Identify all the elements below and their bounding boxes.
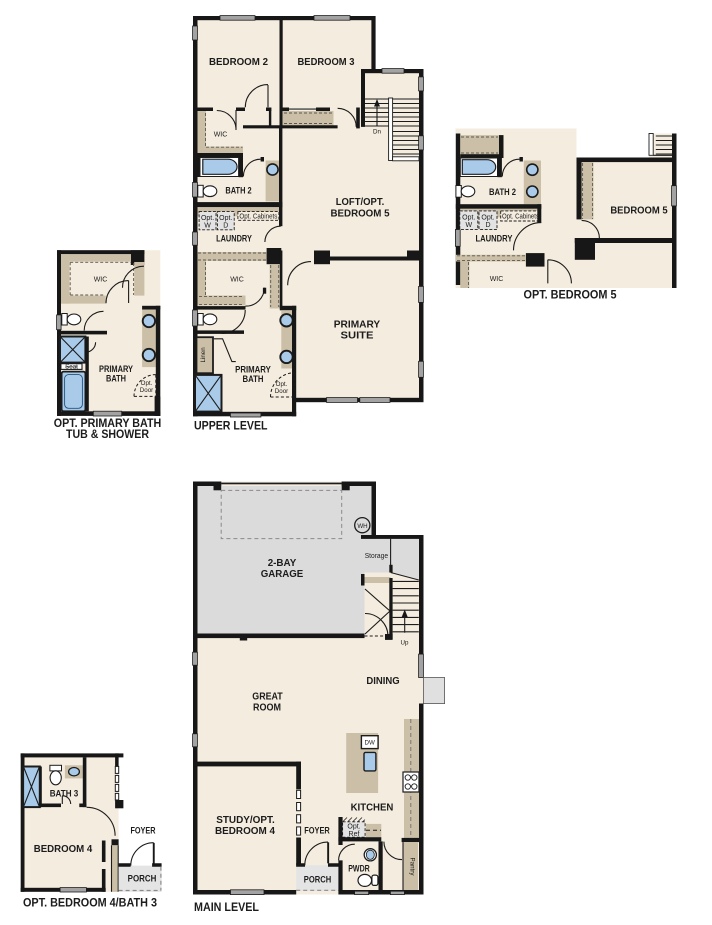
svg-text:PRIMARY: PRIMARY [235,365,271,375]
svg-text:BEDROOM 5: BEDROOM 5 [610,206,668,217]
svg-text:BATH 3: BATH 3 [50,789,79,799]
svg-text:STUDY/OPT.: STUDY/OPT. [216,815,275,826]
svg-text:Opt.: Opt. [481,214,494,221]
svg-text:PRIMARY: PRIMARY [99,364,133,374]
svg-text:Opt. Cabinets: Opt. Cabinets [502,214,539,221]
svg-text:SUITE: SUITE [341,331,374,342]
svg-text:LOFT/OPT.: LOFT/OPT. [336,197,385,208]
svg-text:Linen: Linen [200,347,207,363]
svg-text:PORCH: PORCH [128,873,157,883]
svg-text:DW: DW [365,740,375,747]
svg-text:Opt.: Opt. [276,381,288,388]
svg-text:Pantry: Pantry [409,858,416,877]
svg-text:Opt.: Opt. [201,215,214,222]
svg-text:OPT. BEDROOM 5: OPT. BEDROOM 5 [524,288,617,302]
svg-text:BEDROOM 2: BEDROOM 2 [209,57,268,68]
svg-text:Ref: Ref [349,831,360,838]
svg-text:BATH: BATH [243,374,264,384]
svg-text:GREAT: GREAT [252,692,282,703]
svg-text:Opt.: Opt. [462,214,475,221]
svg-text:Seat: Seat [65,364,78,371]
svg-text:D: D [223,222,228,229]
svg-text:BATH 2: BATH 2 [489,187,516,197]
svg-text:PWDR: PWDR [348,864,370,874]
svg-text:FOYER: FOYER [130,825,155,835]
svg-text:GARAGE: GARAGE [261,569,304,580]
svg-text:D: D [485,222,490,229]
svg-text:BATH: BATH [106,374,126,384]
svg-text:BEDROOM 4: BEDROOM 4 [215,826,275,837]
svg-text:WIC: WIC [230,277,244,284]
svg-text:OPT. BEDROOM 4/BATH 3: OPT. BEDROOM 4/BATH 3 [23,896,157,910]
svg-text:PRIMARY: PRIMARY [334,320,381,331]
svg-text:TUB & SHOWER: TUB & SHOWER [66,427,149,441]
svg-text:BEDROOM 5: BEDROOM 5 [331,209,390,220]
svg-text:DINING: DINING [366,676,400,687]
svg-text:ROOM: ROOM [253,703,281,714]
svg-text:Door: Door [140,387,153,394]
svg-text:WIC: WIC [490,276,504,283]
svg-text:BEDROOM 3: BEDROOM 3 [298,57,355,68]
svg-text:W: W [465,222,472,229]
svg-text:Up: Up [401,640,409,647]
svg-text:WIC: WIC [94,276,108,283]
svg-text:WH: WH [357,523,367,530]
svg-text:Storage: Storage [365,553,388,560]
svg-text:LAUNDRY: LAUNDRY [476,234,513,244]
svg-text:W: W [204,222,211,229]
svg-text:Opt.: Opt. [347,824,360,831]
svg-text:FOYER: FOYER [304,825,330,835]
svg-text:KITCHEN: KITCHEN [351,803,394,814]
svg-text:Opt.: Opt. [141,380,153,387]
svg-text:2-BAY: 2-BAY [268,558,297,569]
svg-text:Door: Door [275,388,288,395]
svg-text:WIC: WIC [214,132,228,139]
svg-text:LAUNDRY: LAUNDRY [216,233,252,243]
svg-text:UPPER LEVEL: UPPER LEVEL [194,419,268,433]
svg-text:PORCH: PORCH [304,874,331,884]
svg-text:BEDROOM 4: BEDROOM 4 [34,844,93,855]
svg-text:MAIN LEVEL: MAIN LEVEL [194,900,259,914]
svg-text:Dn: Dn [373,129,381,136]
svg-text:Opt.: Opt. [219,215,232,222]
svg-text:Opt. Cabinets: Opt. Cabinets [239,213,277,220]
svg-text:BATH 2: BATH 2 [225,186,251,196]
